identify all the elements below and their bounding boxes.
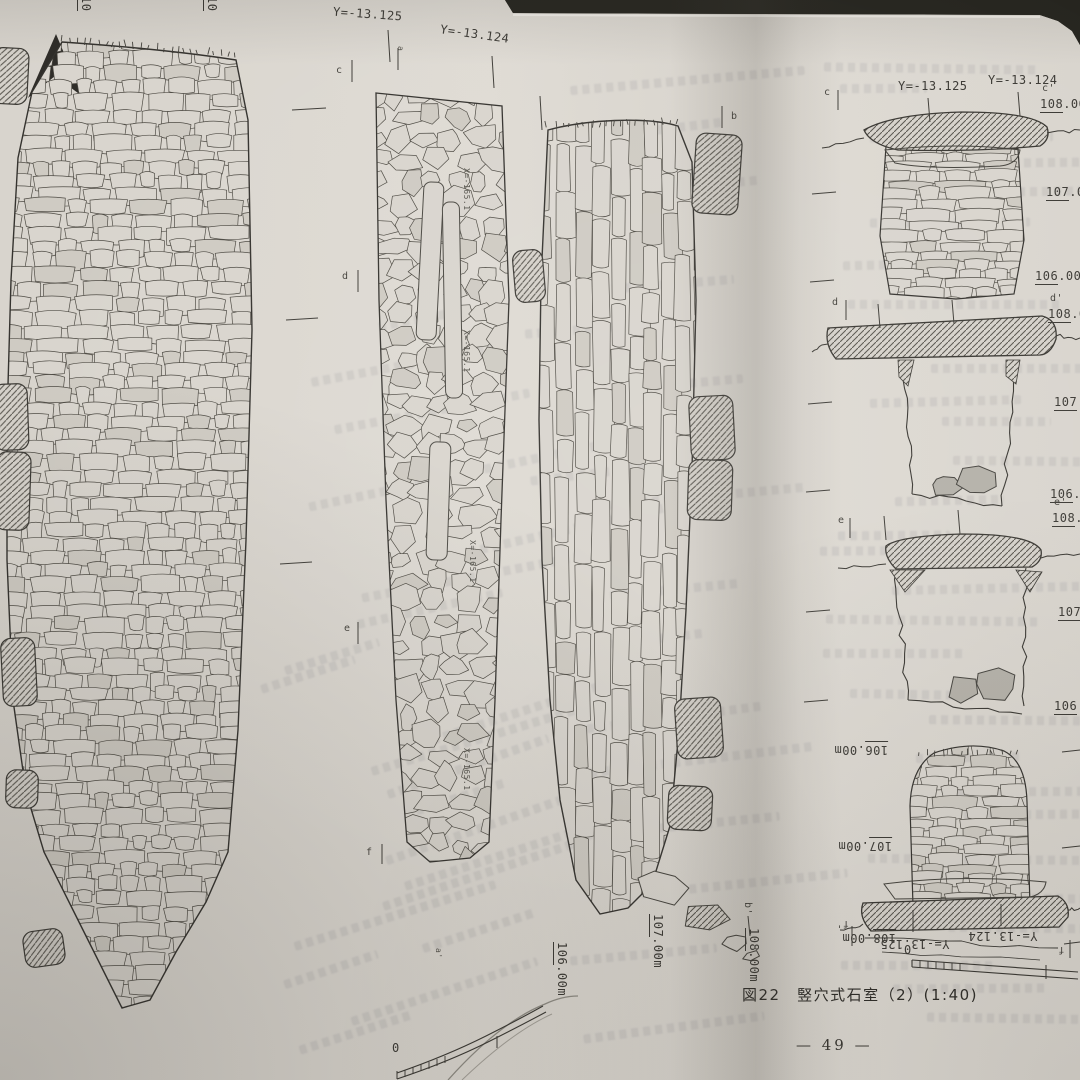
secF-marker-right: f': [836, 918, 849, 928]
secC-marker-right: c': [1042, 84, 1055, 94]
secF-elev-106: 106.00m: [834, 744, 888, 756]
page-number: — 49 —: [796, 1036, 873, 1054]
secE-elev-107: 107.: [1058, 606, 1080, 618]
right-page-labels: Y=-13.125 Y=-13.124 c c' 108.00m 107.00 …: [0, 0, 1080, 1080]
secF-elev-107: 107.00m: [838, 840, 892, 852]
secE-marker-left: e: [838, 516, 845, 526]
secC-elev-107: 107.00: [1046, 186, 1080, 198]
secC-coord-y1: Y=-13.125: [898, 80, 968, 92]
secD-marker-left: d: [832, 298, 839, 308]
secC-elev-108: 108.00m: [1040, 98, 1080, 110]
secD-elev-107: 107.0: [1054, 396, 1080, 408]
secE-elev-106: 106.: [1054, 700, 1080, 712]
secC-marker-left: c: [824, 88, 831, 98]
book-photo: 10 10 Y=-13.125 Y=-13.124 c a d e f a' b…: [0, 0, 1080, 1080]
figure-caption: 図22 竪穴式石室（2）(1:40): [742, 984, 978, 1005]
secD-elev-108: 108.00: [1048, 308, 1080, 320]
scale-zero-right: 0: [904, 944, 912, 956]
secF-coord-y1: Y=-13.125: [880, 938, 950, 950]
secF-coord-y2: Y=-13.124: [968, 930, 1038, 942]
secE-marker-right: e': [1054, 498, 1067, 508]
secD-marker-right: d': [1050, 294, 1063, 304]
secC-elev-106: 106.00: [1035, 270, 1080, 282]
secE-elev-108: 108.: [1052, 512, 1080, 524]
secF-marker-left: f: [1058, 944, 1065, 954]
